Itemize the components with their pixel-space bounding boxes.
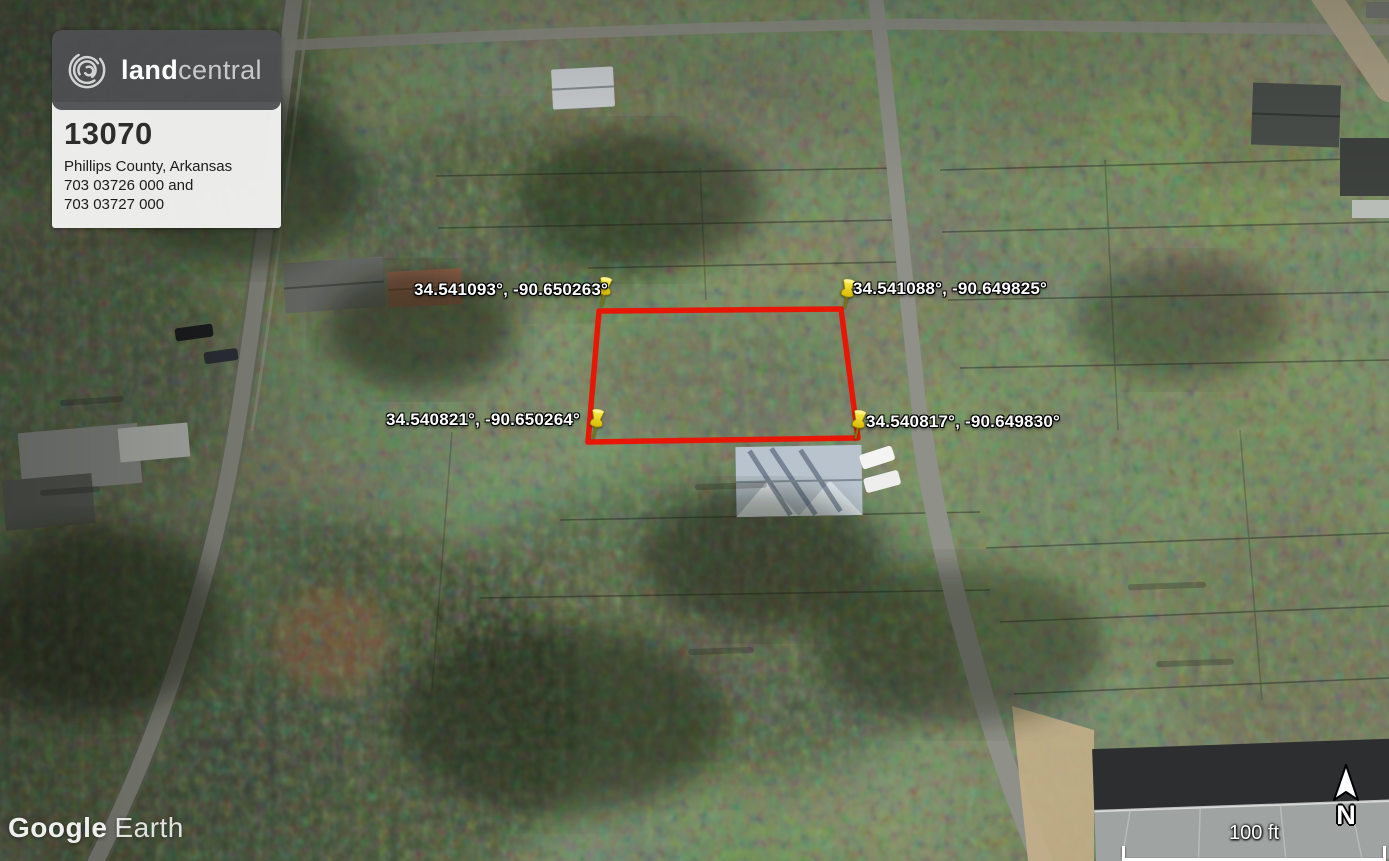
watermark-earth: Earth bbox=[114, 812, 183, 843]
coordinate-label-bottom-right: 34.540817°, -90.649830° bbox=[866, 412, 1060, 432]
coordinate-label-bottom-left: 34.540821°, -90.650264° bbox=[386, 410, 580, 430]
listing-info-card: landcentral 13070 Phillips County, Arkan… bbox=[52, 30, 281, 228]
google-earth-viewport[interactable]: 34.541093°, -90.650263° 34.541088°, -90.… bbox=[0, 0, 1389, 861]
google-earth-watermark: GoogleEarth bbox=[8, 812, 184, 844]
landcentral-brand-header: landcentral bbox=[52, 30, 281, 110]
coordinate-label-top-left: 34.541093°, -90.650263° bbox=[414, 280, 608, 300]
parcel-number-line-2: 703 03727 000 bbox=[64, 195, 269, 214]
watermark-google: Google bbox=[8, 812, 107, 843]
compass: N bbox=[1329, 764, 1363, 828]
landcentral-logo-icon bbox=[66, 49, 108, 91]
listing-location: Phillips County, Arkansas bbox=[64, 157, 269, 176]
scale-bar: 100 ft bbox=[1122, 822, 1386, 861]
scale-bar-label: 100 ft bbox=[1122, 822, 1386, 845]
coordinate-label-top-right: 34.541088°, -90.649825° bbox=[853, 279, 1047, 299]
parcel-number-line-1: 703 03726 000 and bbox=[64, 176, 269, 195]
scale-bar-line bbox=[1122, 846, 1386, 861]
brand-word-land: land bbox=[121, 55, 178, 85]
listing-details: 13070 Phillips County, Arkansas 703 0372… bbox=[52, 102, 281, 228]
listing-id: 13070 bbox=[64, 118, 269, 150]
brand-wordmark: landcentral bbox=[121, 55, 262, 86]
brand-word-central: central bbox=[178, 55, 262, 85]
parcel-boundary-polygon[interactable] bbox=[588, 309, 858, 442]
